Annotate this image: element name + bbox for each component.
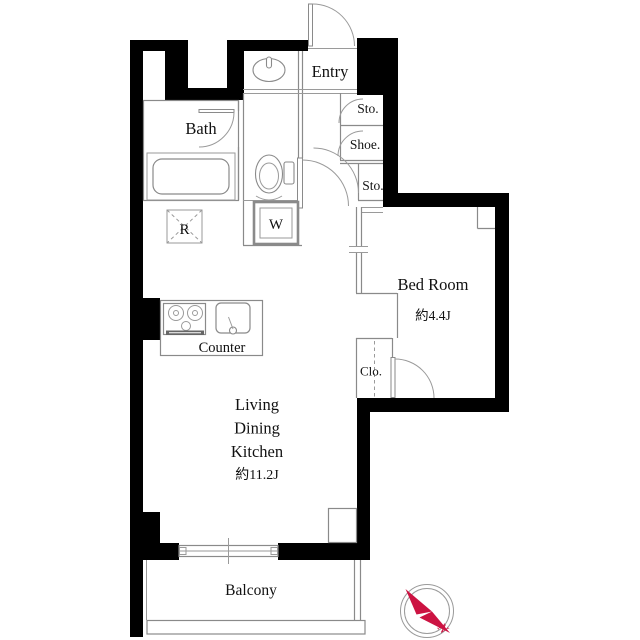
label-ldk-dining: Dining [234, 419, 280, 438]
label-counter: Counter [199, 340, 246, 356]
washbasin-faucet [267, 57, 272, 68]
bedroom-jog-wall [356, 293, 398, 338]
bedroom-west-wall [357, 207, 362, 293]
wall-segment [165, 51, 188, 88]
label-closet: Clo. [360, 364, 382, 379]
burner-center [174, 311, 179, 316]
label-washer: W [269, 217, 284, 233]
bedroom-doorway [362, 208, 383, 213]
room-labels: Entry Bath Sto. Shoe. Sto. R W Counter B… [179, 62, 468, 599]
closet-door-leaf [391, 358, 395, 398]
label-refrigerator: R [179, 222, 189, 238]
burner-center [193, 311, 198, 316]
bedroom-corner-notch [478, 207, 496, 229]
label-ldk-size: 約11.2J [235, 467, 279, 483]
label-entry: Entry [312, 62, 349, 81]
toilet-base [256, 196, 282, 200]
wall-segment [130, 298, 160, 340]
wall-segment [143, 512, 160, 543]
north-arrow [406, 589, 433, 615]
label-shoe: Shoe. [350, 137, 380, 152]
floor-plan-drawing: N Entry Bath Sto. Shoe. Sto. R W Counter… [0, 0, 640, 640]
bath-outline [144, 101, 239, 201]
wall-segment [227, 51, 244, 88]
label-ldk-living: Living [235, 395, 279, 414]
wall-segment [227, 40, 308, 51]
storage2-door-arc [314, 148, 359, 193]
bath-room [144, 100, 239, 201]
wall-segment [383, 193, 509, 207]
burner [188, 306, 203, 321]
wall-segment [357, 398, 509, 412]
balcony-rail [147, 621, 365, 635]
label-bath: Bath [185, 119, 217, 138]
label-bedroom: Bed Room [397, 275, 468, 294]
floor-plan: N Entry Bath Sto. Shoe. Sto. R W Counter… [0, 0, 640, 640]
entry-area [308, 4, 357, 49]
balcony-partition [355, 560, 361, 621]
hall-door-arc [303, 160, 349, 206]
label-storage-top: Sto. [357, 101, 378, 116]
wall-segment [357, 398, 370, 560]
label-balcony: Balcony [225, 582, 277, 599]
entry-door-arc [313, 4, 355, 46]
wall-segment [357, 38, 398, 95]
wall-line [299, 51, 303, 158]
burner [169, 306, 184, 321]
bath-door-leaf [199, 110, 234, 113]
wall-segment [383, 95, 398, 207]
bathtub-surround [147, 153, 235, 200]
wall-segment [495, 193, 509, 412]
burner-small [182, 322, 191, 331]
label-ldk-kitchen: Kitchen [231, 442, 283, 461]
toilet-tank [284, 162, 294, 184]
corner-pillar [329, 509, 357, 543]
label-bedroom-size: 約4.4J [415, 308, 451, 323]
wall-segment [143, 543, 179, 560]
wall-segment [278, 543, 370, 560]
compass-needle: N [406, 589, 453, 637]
hall-door-leaf [298, 158, 303, 208]
wall-segment [165, 88, 244, 100]
bathtub [153, 159, 229, 194]
compass: N [401, 585, 454, 638]
wall-break-ticks [349, 247, 368, 253]
entry-door-leaf [309, 4, 313, 46]
step-lines [243, 90, 357, 94]
label-storage-mid: Sto. [362, 178, 383, 193]
closet-door-arc [395, 359, 434, 398]
